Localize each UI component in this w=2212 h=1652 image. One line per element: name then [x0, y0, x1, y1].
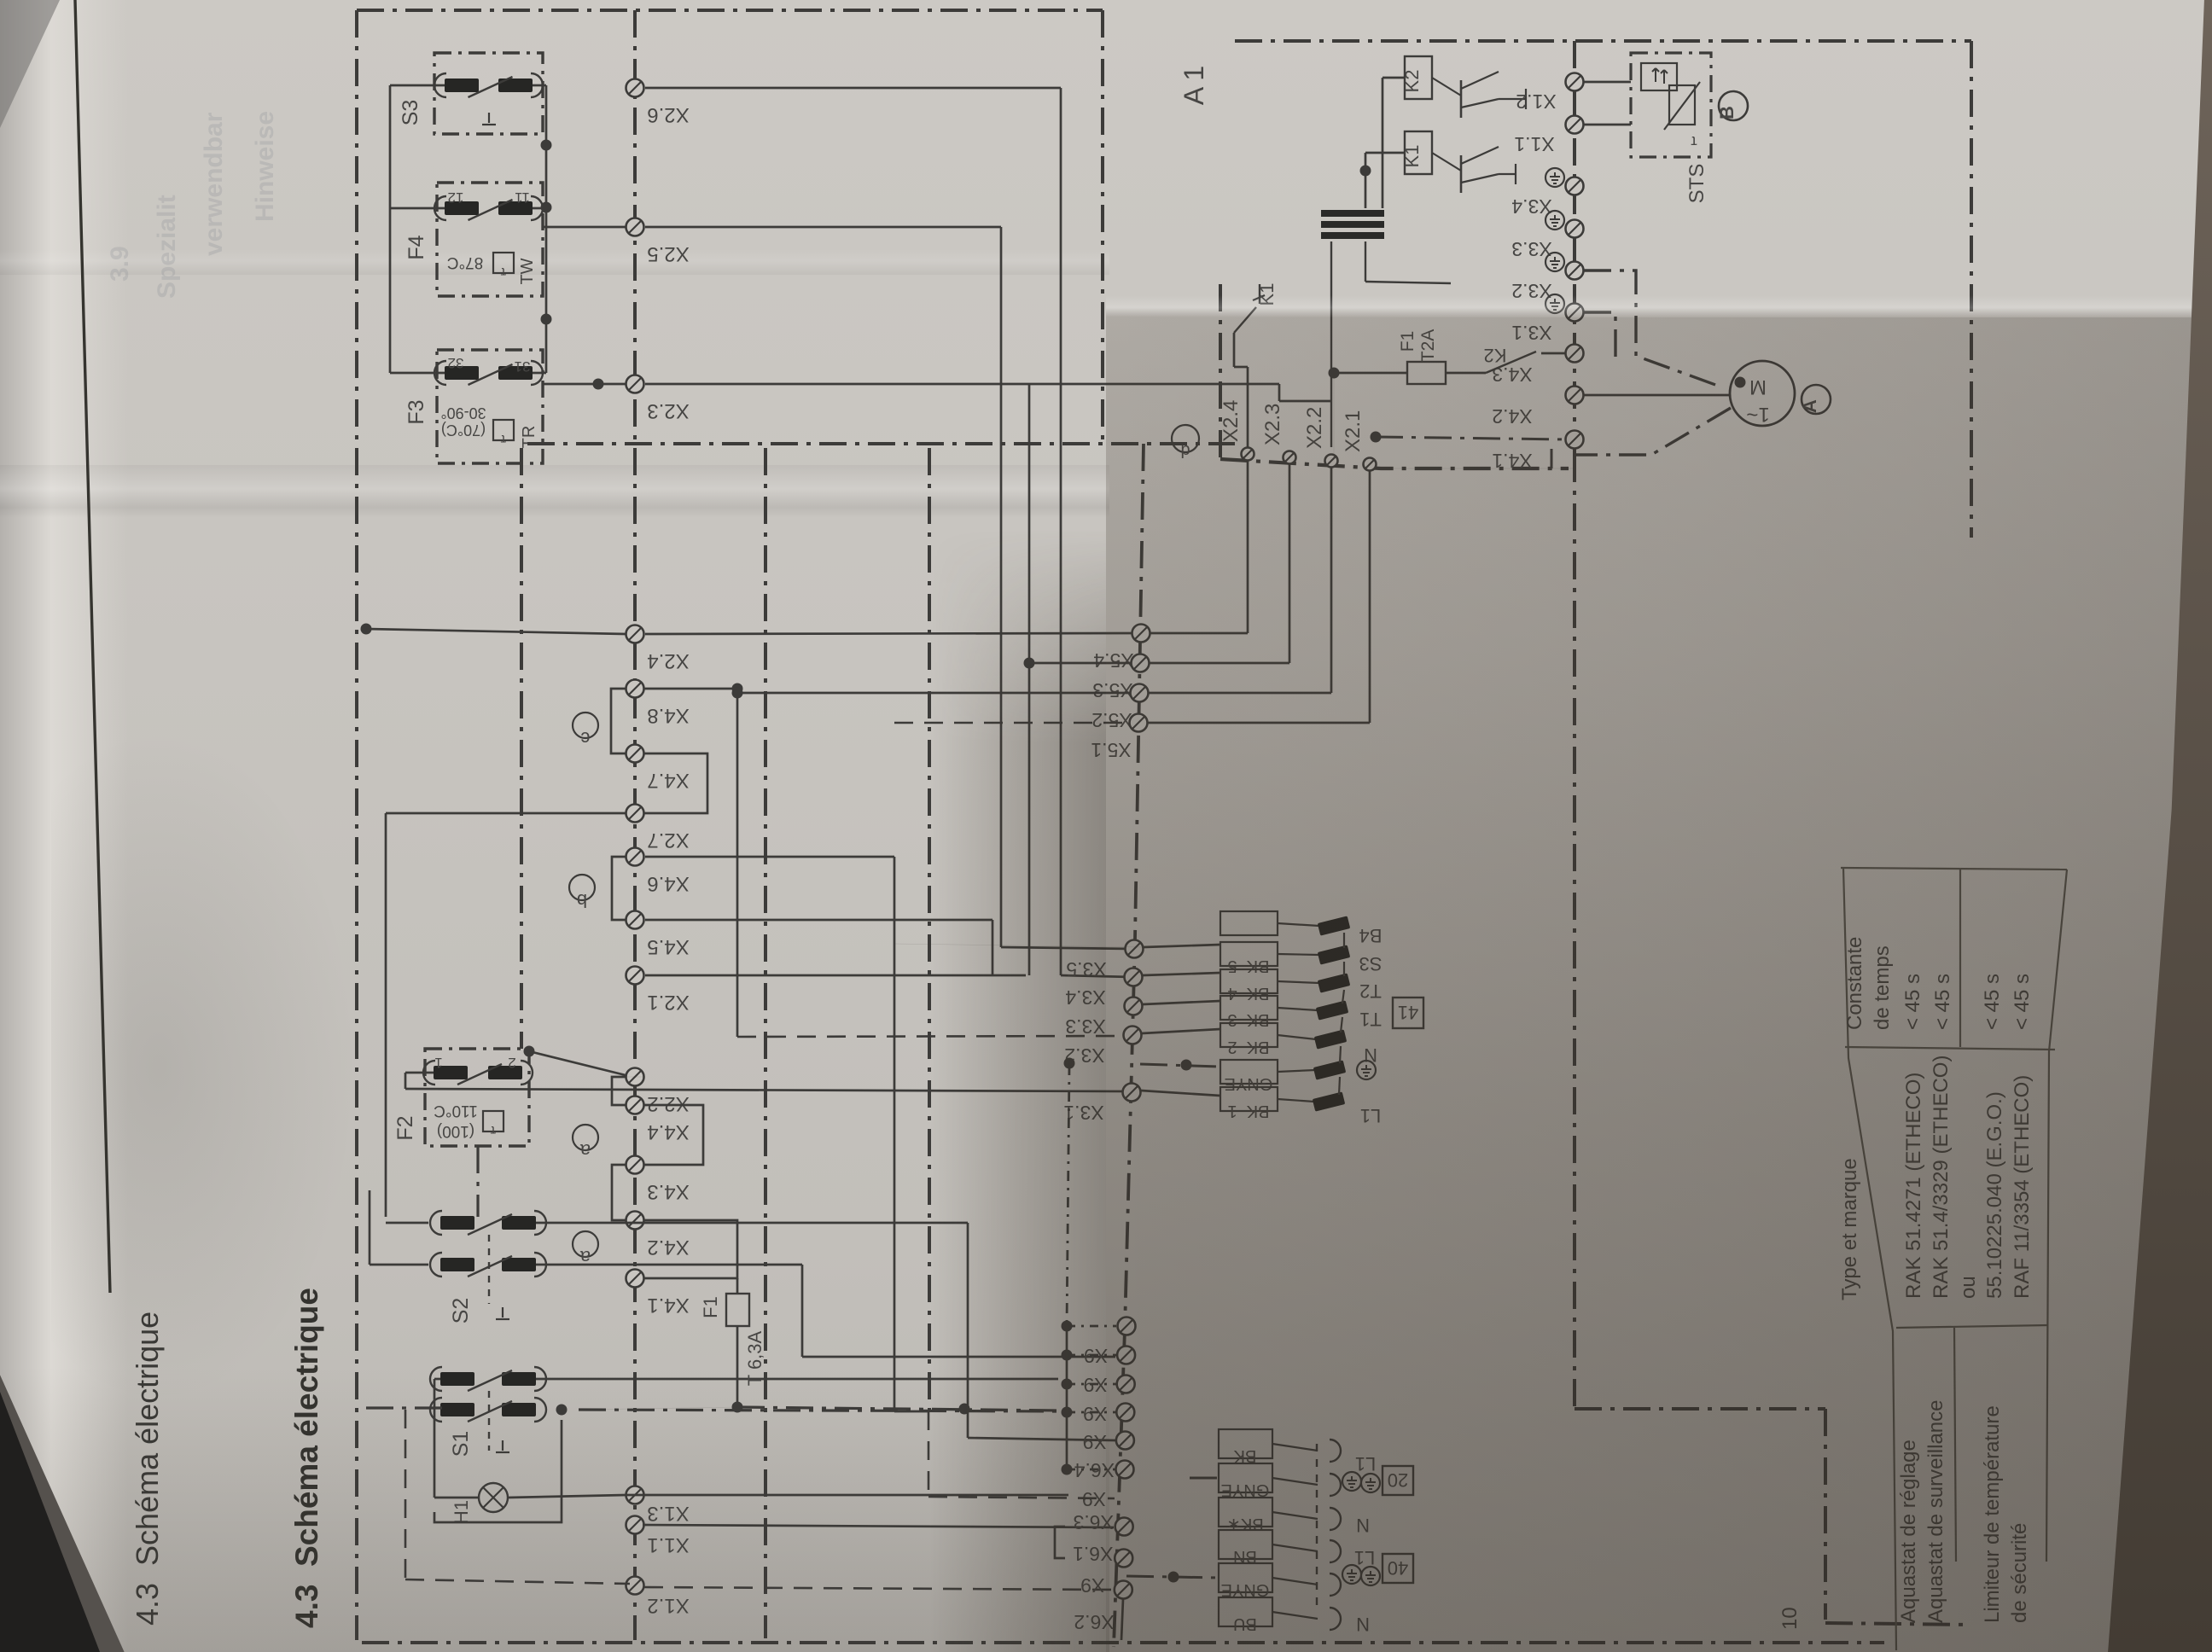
- svg-text:X1.1: X1.1: [1514, 133, 1554, 155]
- svg-text:1: 1: [434, 1055, 442, 1071]
- svg-text:X4.4: X4.4: [647, 1120, 689, 1143]
- svg-text:F4: F4: [405, 235, 428, 259]
- svg-text:τ: τ: [500, 432, 506, 446]
- svg-text:32: 32: [448, 355, 464, 371]
- svg-text:STS: STS: [1685, 164, 1708, 204]
- svg-text:31: 31: [515, 358, 531, 375]
- svg-text:F1: F1: [700, 1296, 721, 1318]
- svg-text:verwendbar: verwendbar: [200, 112, 228, 256]
- svg-text:X4.7: X4.7: [647, 769, 689, 792]
- svg-text:K1: K1: [1401, 145, 1423, 168]
- svg-text:K2: K2: [1401, 70, 1423, 93]
- svg-text:τ: τ: [490, 1123, 496, 1137]
- svg-text:X4.6: X4.6: [647, 872, 689, 895]
- svg-text:τ: τ: [500, 265, 506, 279]
- svg-text:X1.2: X1.2: [1516, 90, 1556, 113]
- svg-text:(100): (100): [437, 1122, 474, 1140]
- svg-text:a: a: [579, 1140, 591, 1161]
- svg-text:X4.5: X4.5: [647, 935, 689, 958]
- svg-text:X2.7: X2.7: [647, 829, 689, 852]
- svg-text:S3: S3: [399, 100, 422, 126]
- svg-text:c: c: [581, 728, 591, 749]
- svg-text:(70°C): (70°C): [441, 422, 486, 439]
- svg-text:12: 12: [448, 189, 464, 206]
- svg-text:TW: TW: [518, 258, 537, 284]
- svg-text:X4.1: X4.1: [647, 1294, 689, 1317]
- svg-text:X2.2: X2.2: [647, 1092, 689, 1115]
- svg-text:Hinweise: Hinweise: [251, 111, 279, 222]
- svg-text:b: b: [577, 890, 587, 911]
- svg-text:F3: F3: [405, 399, 428, 424]
- svg-text:11: 11: [515, 189, 530, 206]
- svg-text:X2.3: X2.3: [647, 399, 689, 422]
- svg-text:2: 2: [508, 1055, 515, 1071]
- svg-text:τ: τ: [1691, 133, 1697, 150]
- svg-text:3.9: 3.9: [106, 246, 134, 282]
- svg-text:87°C: 87°C: [447, 253, 483, 271]
- svg-text:X2.1: X2.1: [647, 991, 689, 1014]
- svg-text:X4.8: X4.8: [647, 704, 689, 727]
- svg-text:X4.2: X4.2: [647, 1236, 689, 1259]
- svg-text:F2: F2: [393, 1115, 417, 1140]
- svg-text:X2.5: X2.5: [647, 242, 689, 265]
- svg-text:X4.3: X4.3: [647, 1180, 689, 1203]
- svg-text:X2.6: X2.6: [647, 103, 689, 126]
- svg-text:B: B: [1716, 106, 1738, 119]
- svg-text:A 1: A 1: [1179, 66, 1209, 105]
- svg-text:S2: S2: [449, 1298, 473, 1324]
- svg-text:Spezialit: Spezialit: [153, 195, 181, 299]
- svg-text:30-90°: 30-90°: [440, 404, 486, 422]
- svg-text:X2.4: X2.4: [647, 649, 689, 672]
- svg-text:110°C: 110°C: [434, 1102, 478, 1120]
- svg-text:X3.4: X3.4: [1511, 195, 1552, 218]
